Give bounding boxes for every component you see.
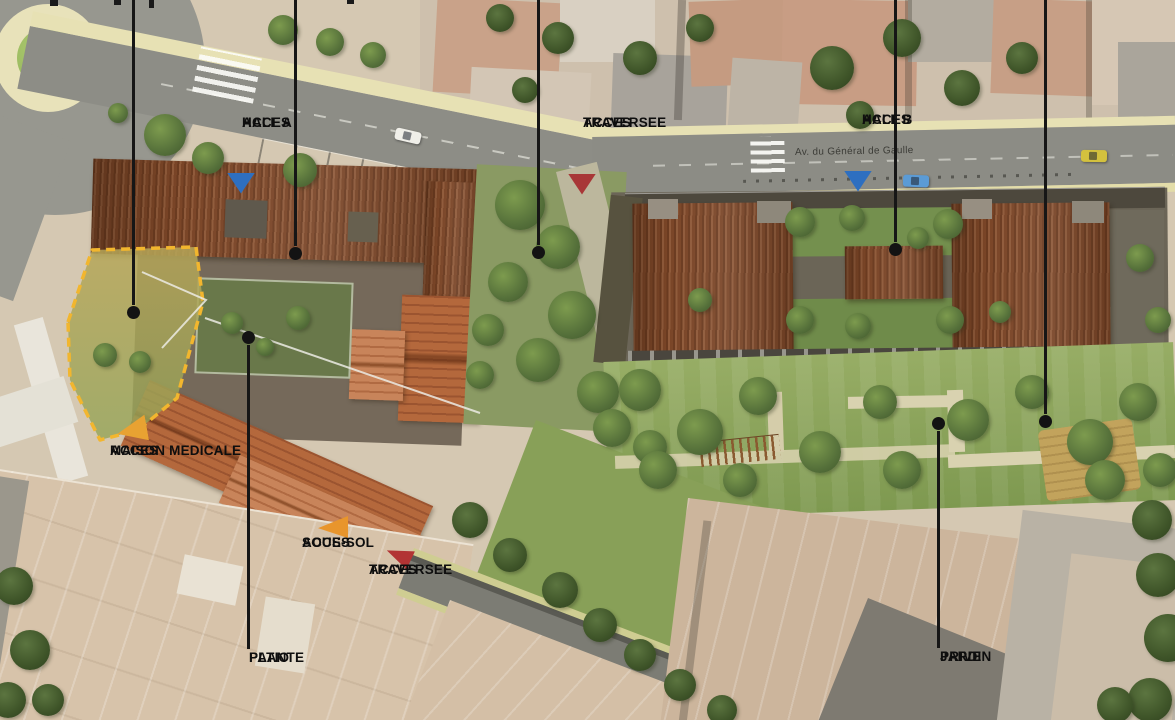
tree xyxy=(129,351,151,373)
tree xyxy=(639,451,677,489)
callout-zone-medicale-line xyxy=(132,0,135,305)
tree xyxy=(944,70,980,106)
tree xyxy=(786,306,814,334)
batiment-b2-roof xyxy=(951,202,1110,353)
tree xyxy=(883,19,921,57)
tree xyxy=(1067,419,1113,465)
tree xyxy=(221,312,243,334)
tree xyxy=(360,42,386,68)
edge-mark xyxy=(114,0,121,5)
tree xyxy=(1145,307,1171,333)
tree xyxy=(144,114,186,156)
voiture-bleue xyxy=(903,175,929,188)
tree xyxy=(839,205,865,231)
tree xyxy=(93,343,117,367)
tree xyxy=(799,431,841,473)
acces-sous-sol-text: SOUS-SOL xyxy=(302,536,374,550)
flat-roof-patch xyxy=(962,199,992,219)
tree xyxy=(593,409,631,447)
tree xyxy=(845,313,871,339)
tree xyxy=(623,41,657,75)
acces-traversee-nord-text: TRAVERSEE xyxy=(583,116,666,130)
tree xyxy=(1128,678,1172,720)
callout-patio-line xyxy=(247,345,250,649)
acces-hall-b-text: HALL B xyxy=(862,113,912,127)
tree xyxy=(688,288,712,312)
tree xyxy=(10,630,50,670)
callout-zone-medicale-dot xyxy=(127,306,140,319)
toiture-tuiles-est xyxy=(349,329,405,401)
rooftop xyxy=(728,58,803,133)
tree xyxy=(548,291,596,339)
tree xyxy=(583,608,617,642)
rooftop xyxy=(908,0,1000,62)
patio-courtyard xyxy=(194,277,353,378)
tree xyxy=(542,572,578,608)
tree xyxy=(486,4,514,32)
tree xyxy=(1143,453,1175,487)
tree xyxy=(286,306,310,330)
edge-mark xyxy=(347,0,354,4)
tree xyxy=(472,314,504,346)
tree xyxy=(619,369,661,411)
callout-traversee-dot xyxy=(532,246,545,259)
tree xyxy=(283,153,317,187)
tree xyxy=(32,684,64,716)
tree xyxy=(1136,553,1175,597)
tree xyxy=(933,209,963,239)
tree xyxy=(452,502,488,538)
callout-batiment-a-line xyxy=(294,0,297,246)
rooftop xyxy=(1118,42,1175,127)
tree xyxy=(677,409,723,455)
callout-batiment-b-dot xyxy=(889,243,902,256)
tree xyxy=(1006,42,1038,74)
tree xyxy=(686,14,714,42)
acces-traversee-sud-text: TRAVERSEE xyxy=(369,563,452,577)
crosswalk xyxy=(750,136,785,173)
flat-roof-patch xyxy=(1072,201,1104,223)
tree xyxy=(810,46,854,90)
tree xyxy=(723,463,757,497)
tree xyxy=(883,451,921,489)
callout-batiment-a-dot xyxy=(289,247,302,260)
tree xyxy=(493,538,527,572)
tree xyxy=(624,639,656,671)
tree xyxy=(1085,460,1125,500)
tree xyxy=(316,28,344,56)
callout-traversee-line xyxy=(537,0,540,245)
tree xyxy=(542,22,574,54)
callout-patio-dot xyxy=(242,331,255,344)
tree xyxy=(936,306,964,334)
callout-jardin-prive-line xyxy=(937,431,940,648)
roof-notch xyxy=(347,211,378,242)
edge-mark xyxy=(149,0,154,8)
callout-est-dot xyxy=(1039,415,1052,428)
edge-mark xyxy=(50,0,58,6)
tree xyxy=(863,385,897,419)
acces-maison-medicale-text: MAISON MEDICALE xyxy=(110,444,241,458)
tree xyxy=(108,103,128,123)
tree xyxy=(1119,383,1157,421)
flat-roof-patch xyxy=(648,199,678,219)
callout-jardin-prive-dot xyxy=(932,417,945,430)
tree xyxy=(1097,687,1133,720)
jardin-prive-text: PRIVE xyxy=(940,650,982,664)
tree xyxy=(739,377,777,415)
tree xyxy=(907,227,929,249)
acces-hall-a-text: HALL A xyxy=(242,116,292,130)
voiture-jaune xyxy=(1081,150,1107,162)
tree xyxy=(512,77,538,103)
patio-plante-text: PLANTE xyxy=(249,651,304,665)
callout-est-line xyxy=(1044,0,1047,414)
tree xyxy=(707,695,737,720)
tree xyxy=(516,338,560,382)
tree xyxy=(989,301,1011,323)
tree xyxy=(577,371,619,413)
tree xyxy=(1132,500,1172,540)
tree xyxy=(488,262,528,302)
tree xyxy=(947,399,989,441)
roof-notch xyxy=(224,199,267,238)
tree xyxy=(192,142,224,174)
batiment-b1-roof xyxy=(632,202,793,353)
tree xyxy=(664,669,696,701)
site-plan-canvas: Av. du Général de Gaulle xyxy=(0,0,1175,720)
tree xyxy=(466,361,494,389)
tree xyxy=(256,338,274,356)
tree xyxy=(785,207,815,237)
tree xyxy=(1126,244,1154,272)
